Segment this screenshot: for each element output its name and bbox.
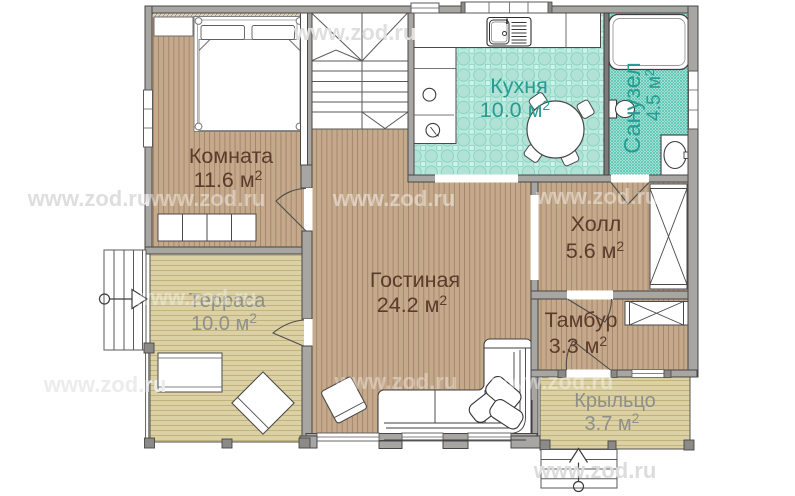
svg-text:www.zod.ru: www.zod.ru	[334, 369, 458, 394]
svg-text:Комната: Комната	[189, 144, 273, 168]
svg-text:www.zod.ru: www.zod.ru	[43, 372, 167, 397]
svg-text:Гостиная: Гостиная	[370, 268, 460, 292]
svg-text:www.zod.ru: www.zod.ru	[533, 458, 657, 483]
svg-text:5.6 м2: 5.6 м2	[566, 238, 625, 263]
svg-text:24.2 м2: 24.2 м2	[377, 292, 448, 317]
svg-text:www.zod.ru: www.zod.ru	[490, 369, 614, 394]
svg-text:www.zod.ru: www.zod.ru	[27, 186, 151, 211]
svg-text:www.zod.ru: www.zod.ru	[535, 184, 659, 209]
svg-text:10.0 м2: 10.0 м2	[480, 97, 551, 122]
svg-text:www.zod.ru: www.zod.ru	[332, 186, 456, 211]
svg-text:www.zod.ru: www.zod.ru	[142, 186, 266, 211]
svg-text:Холл: Холл	[571, 212, 622, 236]
svg-text:10.0 м2: 10.0 м2	[191, 310, 257, 335]
svg-text:4.5 м2: 4.5 м2	[643, 69, 665, 121]
svg-text:www.zod.ru: www.zod.ru	[293, 20, 417, 45]
svg-text:3.3 м2: 3.3 м2	[549, 333, 608, 358]
svg-text:3.7 м2: 3.7 м2	[585, 410, 640, 435]
svg-text:Кухня: Кухня	[490, 74, 548, 98]
svg-text:Санузел: Санузел	[619, 62, 645, 154]
svg-text:www.zod.ru: www.zod.ru	[133, 285, 257, 310]
svg-text:Тамбур: Тамбур	[545, 308, 618, 332]
